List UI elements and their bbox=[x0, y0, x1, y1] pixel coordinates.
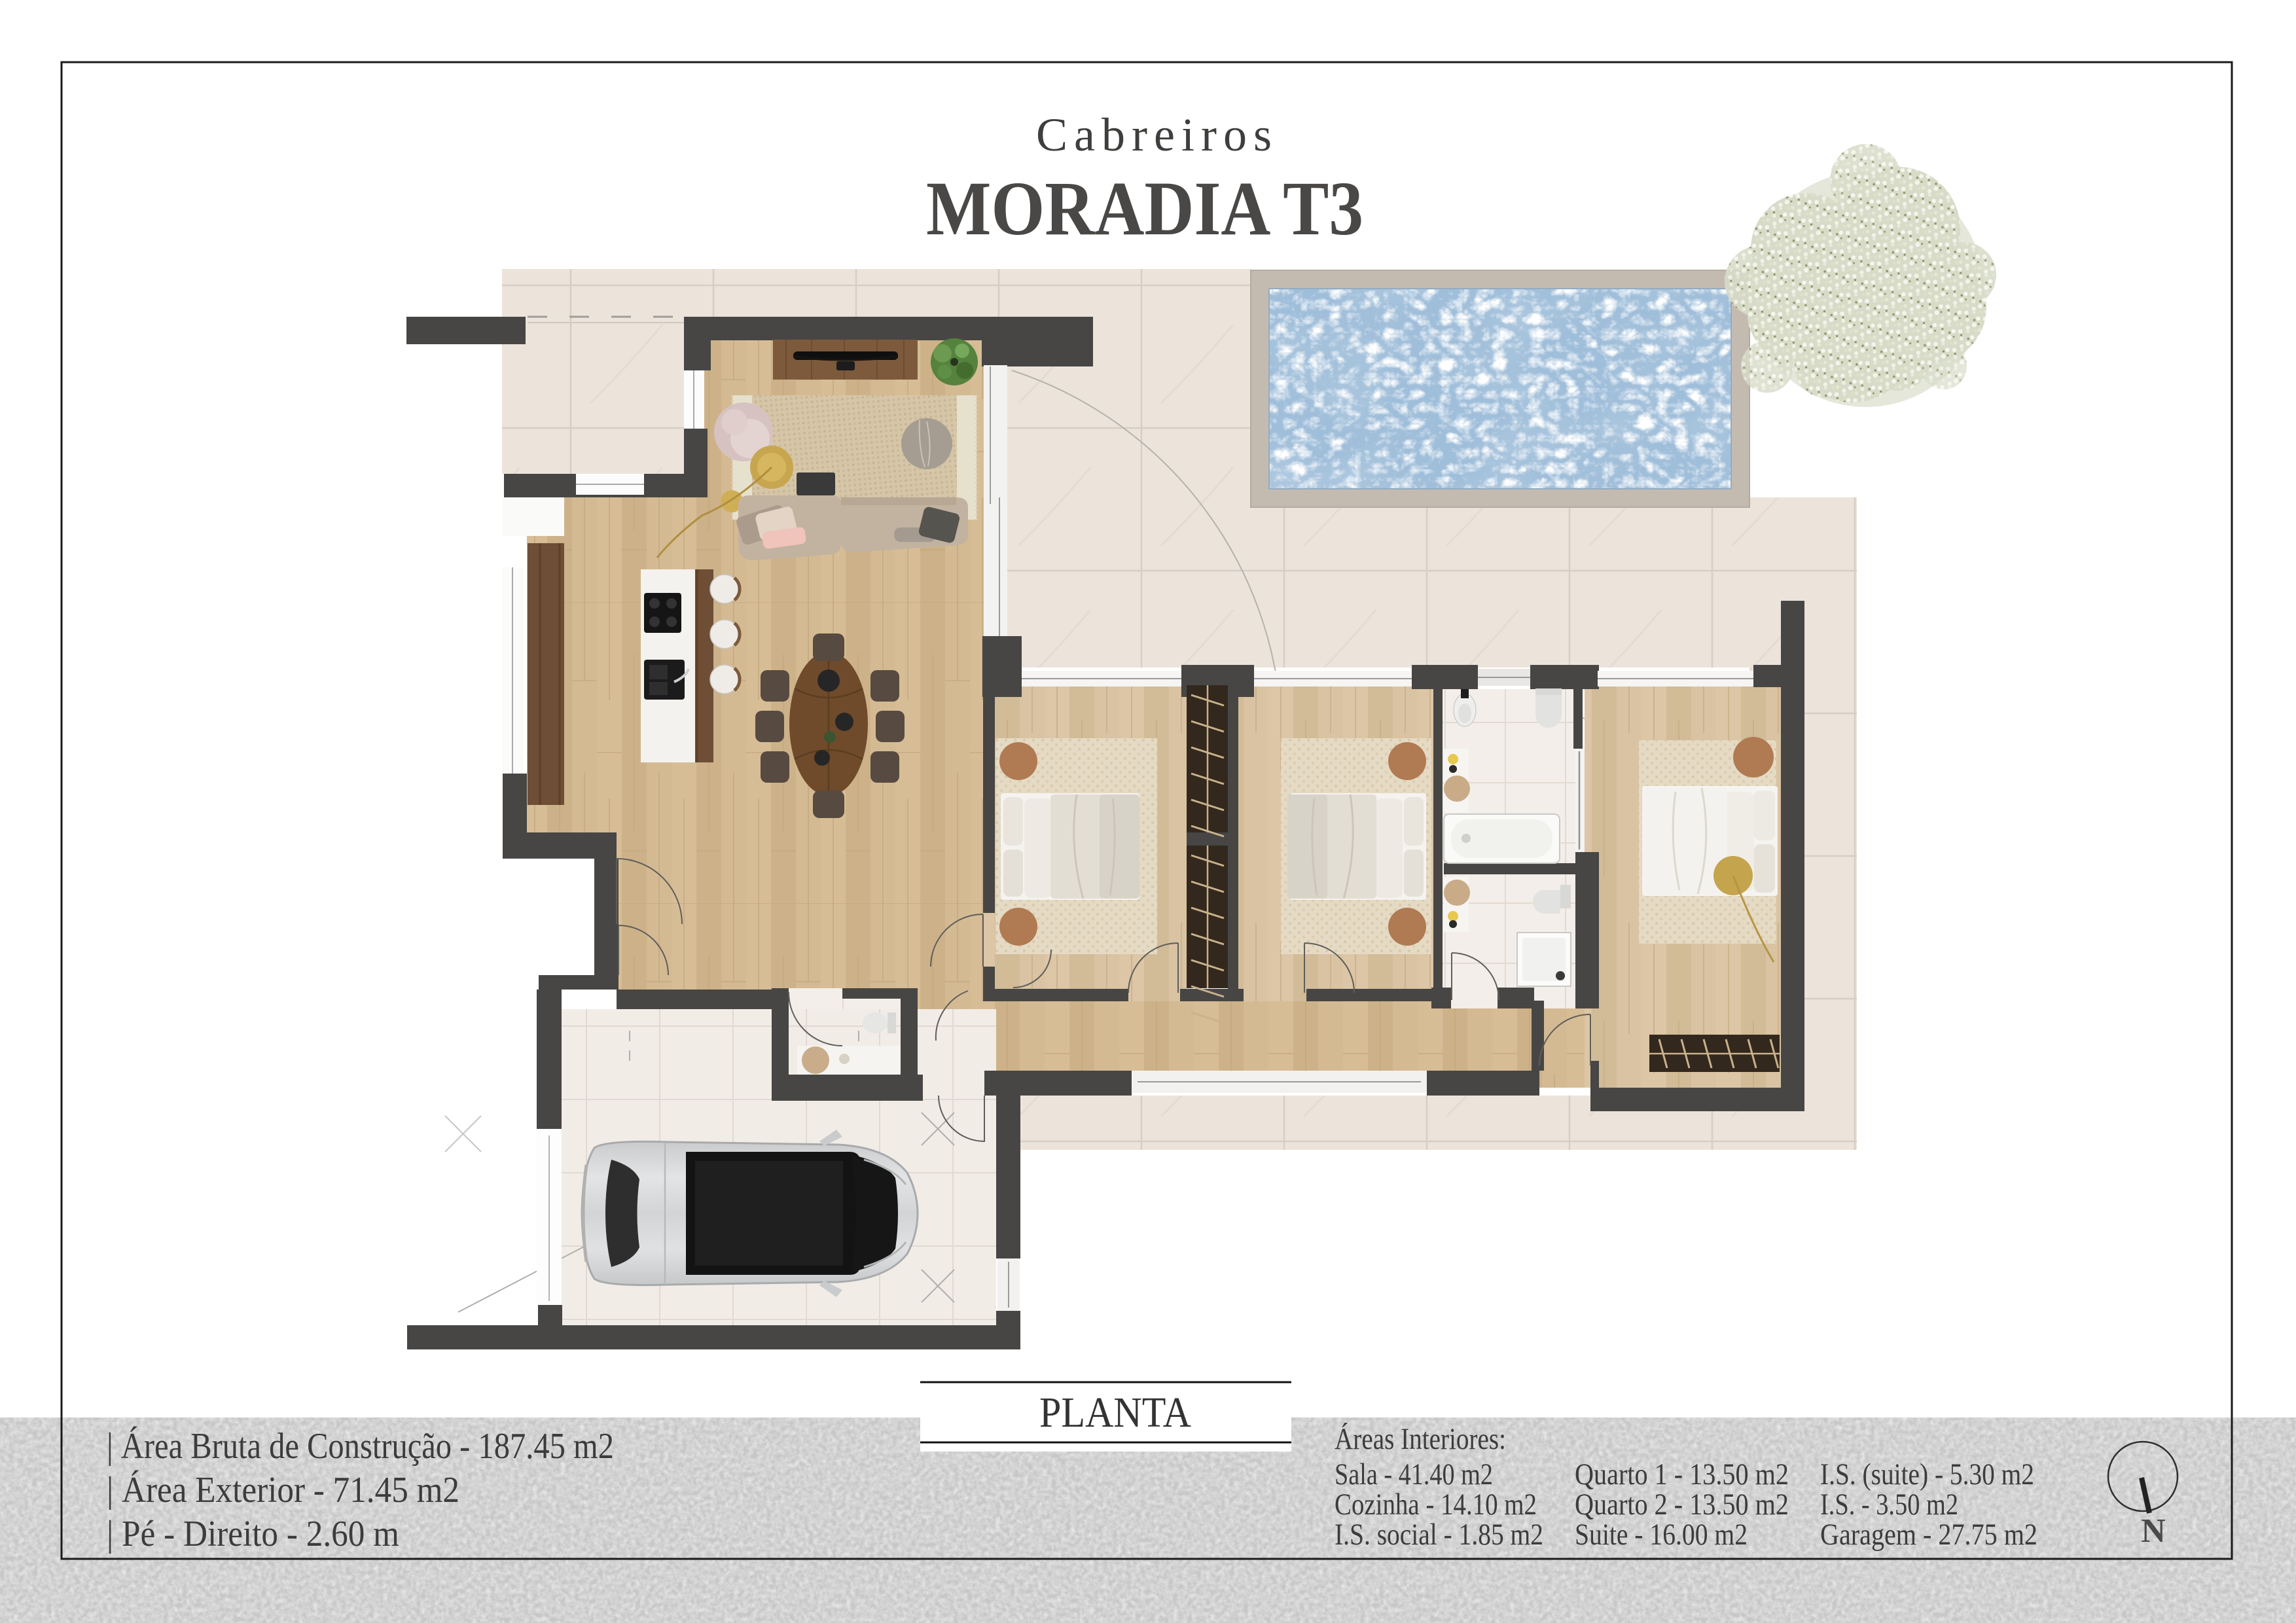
svg-text:Quarto 2 - 13.50 m2: Quarto 2 - 13.50 m2 bbox=[1575, 1488, 1789, 1522]
svg-text:PLANTA: PLANTA bbox=[1039, 1389, 1191, 1436]
svg-text:I.S. social - 1.85 m2: I.S. social - 1.85 m2 bbox=[1335, 1518, 1543, 1552]
svg-text:Cozinha - 14.10 m2: Cozinha - 14.10 m2 bbox=[1335, 1488, 1537, 1522]
svg-text:| Pé - Direito - 2.60 m: | Pé - Direito - 2.60 m bbox=[107, 1514, 399, 1554]
svg-text:Áreas Interiores:: Áreas Interiores: bbox=[1335, 1422, 1506, 1456]
svg-text:Suite - 16.00 m2: Suite - 16.00 m2 bbox=[1575, 1518, 1748, 1552]
svg-text:Quarto 1 - 13.50 m2: Quarto 1 - 13.50 m2 bbox=[1575, 1457, 1789, 1491]
svg-text:| Área Exterior - 71.45 m2: | Área Exterior - 71.45 m2 bbox=[107, 1470, 459, 1510]
svg-text:Cabreiros: Cabreiros bbox=[1036, 109, 1278, 161]
svg-text:I.S. (suite) - 5.30 m2: I.S. (suite) - 5.30 m2 bbox=[1820, 1457, 2034, 1491]
svg-text:Garagem - 27.75 m2: Garagem - 27.75 m2 bbox=[1820, 1518, 2037, 1552]
svg-text:I.S. - 3.50 m2: I.S. - 3.50 m2 bbox=[1820, 1488, 1958, 1522]
svg-text:N: N bbox=[2141, 1512, 2166, 1550]
svg-text:| Área Bruta de Construção - 1: | Área Bruta de Construção - 187.45 m2 bbox=[107, 1426, 614, 1467]
svg-text:MORADIA T3: MORADIA T3 bbox=[926, 166, 1363, 251]
svg-text:Sala - 41.40 m2: Sala - 41.40 m2 bbox=[1335, 1457, 1493, 1491]
